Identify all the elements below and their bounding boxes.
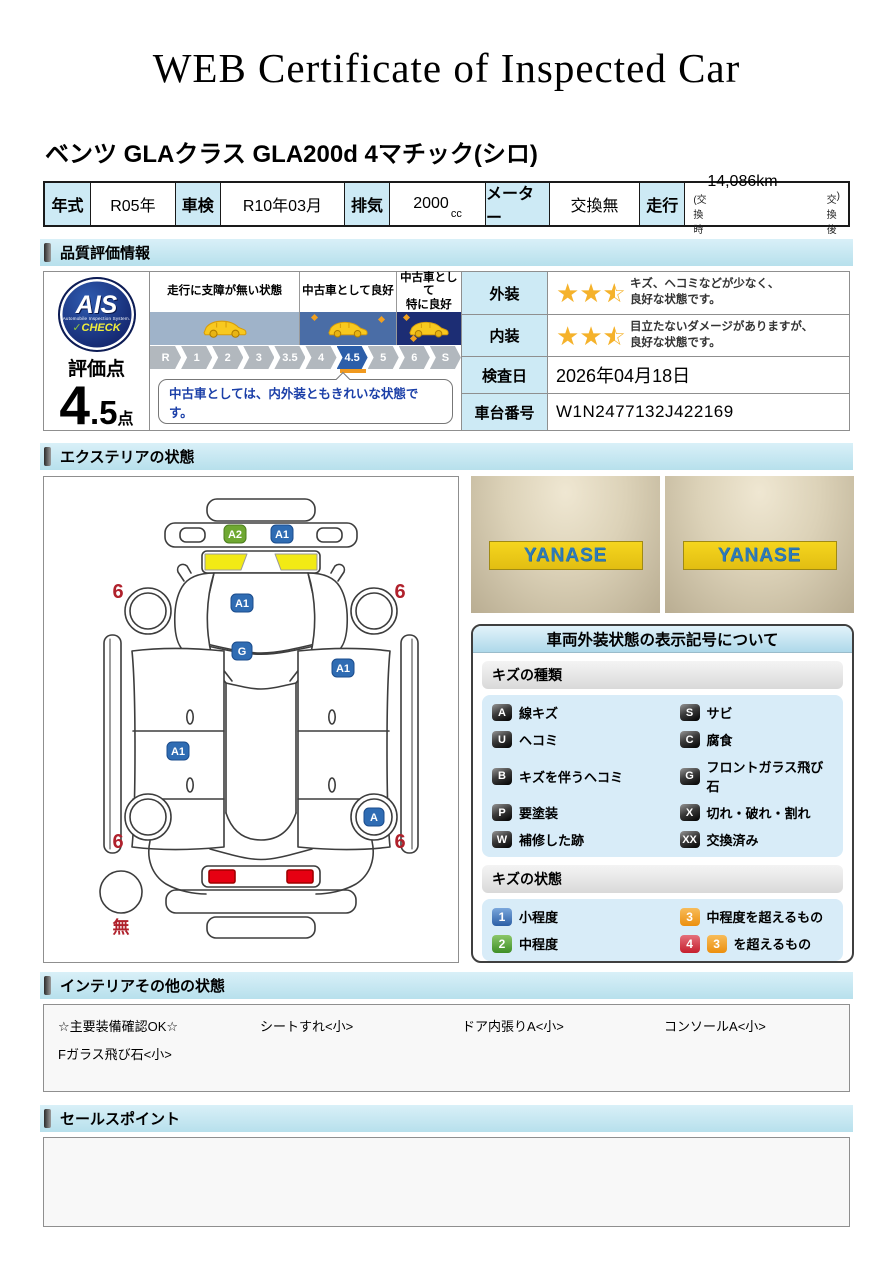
vehicle-photos: YANASE YANASE — [471, 476, 854, 613]
roof — [226, 683, 296, 813]
legend-item: Sサビ — [680, 703, 833, 722]
section-title: 品質評価情報 — [60, 242, 150, 263]
spec-meter-label: メーター — [485, 183, 549, 225]
legend-item: 43を超えるもの — [680, 934, 833, 953]
score-value: 4 .5 点 — [59, 381, 133, 431]
interior-notes: ☆主要装備確認OK☆ シートすれ<小> ドア内張りA<小> コンソールA<小> … — [43, 1004, 850, 1092]
damage-marker-A1-right-door: A1 — [332, 659, 354, 677]
grade-seg-2: 2 — [212, 346, 243, 369]
ais-check-label: ✓CHECK — [72, 321, 120, 334]
sparkle-icon — [311, 314, 318, 321]
zone-band — [300, 312, 395, 345]
table-row: 外装 ★★★☆ キズ、ヘコミなどが少なく、 良好な状態です。 — [462, 272, 849, 314]
zone-excellent: 中古車として 特に良好 — [396, 272, 461, 345]
vin-label: 車台番号 — [462, 394, 548, 430]
tire-depth-rear-left: 6 — [112, 831, 123, 853]
zone-drivable: 走行に支障が無い状態 — [150, 272, 299, 345]
legend-item: 3中程度を超えるもの — [680, 907, 833, 926]
damage-code-badge: X — [680, 804, 700, 821]
damage-symbol-legend: 車両外装状態の表示記号について キズの種類 A線キズ Sサビ Uヘコミ C腐食 … — [471, 624, 854, 963]
legend-item: Bキズを伴うヘコミ — [492, 757, 680, 795]
headlight-right — [275, 554, 317, 570]
star-icon: ★ — [556, 323, 579, 349]
grade-seg-5: 5 — [368, 346, 399, 369]
legend-item: 2中程度 — [492, 934, 680, 953]
svg-text:A2: A2 — [228, 529, 242, 541]
damage-marker-A1-hood: A1 — [231, 594, 253, 612]
star-rating: ★★★☆ — [556, 323, 626, 349]
grade-seg-4_5-active: 4.5 — [337, 346, 368, 369]
headlight-left — [205, 554, 247, 570]
grade-seg-3: 3 — [243, 346, 274, 369]
legend-item: X切れ・破れ・割れ — [680, 803, 833, 822]
inspection-date-value: 2026年04月18日 — [548, 357, 849, 393]
sparkle-icon — [378, 316, 385, 323]
car-damage-diagram: A2 A1 A1 G A — [43, 476, 459, 963]
interior-note: シートすれ<小> — [260, 1016, 462, 1035]
legend-item: C腐食 — [680, 730, 833, 749]
mileage-note: (交換時 交換後 ) — [693, 191, 840, 236]
grade-seg-1: 1 — [181, 346, 212, 369]
mileage-note-close: ) — [837, 191, 840, 236]
damage-marker-A1-left-door: A1 — [167, 742, 189, 760]
quality-detail-table: 外装 ★★★☆ キズ、ヘコミなどが少なく、 良好な状態です。 内装 ★★★☆ 目… — [462, 272, 849, 430]
spec-inspection-label: 車検 — [175, 183, 220, 225]
severity-badge: 4 — [680, 935, 700, 953]
table-row: 検査日 2026年04月18日 — [462, 356, 849, 393]
section-title: インテリアその他の状態 — [60, 975, 225, 996]
section-accent-bar — [44, 243, 51, 262]
interior-note: ☆主要装備確認OK☆ — [58, 1016, 260, 1035]
ais-score-block: AIS Automobile Inspection System. ✓CHECK… — [44, 272, 150, 430]
damage-code-badge: W — [492, 831, 512, 848]
damage-code-badge: P — [492, 804, 512, 821]
severity-badge: 3 — [707, 935, 727, 953]
interior-note: Fガラス飛び石<小> — [58, 1044, 260, 1063]
damage-code-badge: U — [492, 731, 512, 748]
legend-kinds-header: キズの種類 — [482, 661, 843, 689]
section-header-exterior: エクステリアの状態 — [40, 443, 853, 470]
taillight-right — [287, 870, 313, 883]
section-accent-bar — [44, 447, 51, 466]
spec-table: 年式 R05年 車検 R10年03月 排気 2000 cc メーター 交換無 走… — [43, 181, 850, 227]
mileage-note-after: 交換後 — [827, 191, 837, 236]
grade-seg-6: 6 — [399, 346, 430, 369]
interior-label: 内装 — [462, 315, 548, 356]
grade-seg-S: S — [430, 346, 461, 369]
displacement-unit: cc — [451, 208, 462, 220]
damage-code-badge: C — [680, 731, 700, 748]
svg-text:G: G — [238, 646, 247, 658]
damage-code-badge: G — [680, 768, 700, 785]
damage-code-badge: B — [492, 768, 512, 785]
exterior-label: 外装 — [462, 272, 548, 314]
tire-depth-rear-right: 6 — [394, 831, 405, 853]
legend-item: Uヘコミ — [492, 730, 680, 749]
exterior-content: A2 A1 A1 G A — [43, 476, 850, 963]
star-icon: ★ — [579, 280, 602, 306]
damage-code-badge: A — [492, 704, 512, 721]
spec-year-value: R05年 — [90, 183, 175, 225]
grade-comment: 中古車としては、内外装ともきれいな状態です。 — [158, 379, 453, 424]
zone-band — [150, 312, 299, 345]
section-title: エクステリアの状態 — [60, 446, 195, 467]
star-icon: ★ — [556, 280, 579, 306]
exterior-comment: キズ、ヘコミなどが少なく、 良好な状態です。 — [630, 277, 780, 308]
dealer-sign: YANASE — [489, 541, 643, 570]
half-star-icon: ★☆ — [603, 323, 626, 349]
damage-marker-A2: A2 — [224, 525, 246, 543]
legend-item: W補修した跡 — [492, 830, 680, 849]
car-name: ベンツ GLAクラス GLA200d 4マチック(シロ) — [45, 134, 893, 169]
rating-zones: 走行に支障が無い状態 中古車として良好 中古車として — [150, 272, 461, 345]
rear-window — [226, 813, 296, 840]
ais-logo: AIS Automobile Inspection System. ✓CHECK — [58, 277, 136, 352]
legend-item: A線キズ — [492, 703, 680, 722]
severity-badge: 1 — [492, 908, 512, 926]
page-title: WEB Certificate of Inspected Car — [0, 0, 893, 92]
svg-text:A: A — [370, 812, 378, 824]
legend-title: 車両外装状態の表示記号について — [473, 626, 852, 653]
dealer-sign: YANASE — [683, 541, 837, 570]
zone-band — [397, 312, 461, 345]
spec-mileage-cell: 14,086km (交換時 交換後 ) — [684, 183, 848, 225]
legend-item: XX交換済み — [680, 830, 833, 849]
rating-scale-block: 走行に支障が無い状態 中古車として良好 中古車として — [150, 272, 462, 430]
interior-note: ドア内張りA<小> — [462, 1016, 664, 1035]
section-header-sales: セールスポイント — [40, 1105, 853, 1132]
damage-marker-A-rear-wheel: A — [364, 808, 384, 826]
interior-note: コンソールA<小> — [664, 1016, 835, 1035]
taillight-left — [209, 870, 235, 883]
ais-logo-text: AIS — [76, 295, 118, 315]
spec-year-label: 年式 — [45, 183, 90, 225]
section-header-quality: 品質評価情報 — [40, 239, 853, 266]
legend-states-header: キズの状態 — [482, 865, 843, 893]
section-accent-bar — [44, 1109, 51, 1128]
vehicle-photo: YANASE — [471, 476, 660, 613]
legend-kinds-list: A線キズ Sサビ Uヘコミ C腐食 Bキズを伴うヘコミ Gフロントガラス飛び石 … — [482, 695, 843, 857]
damage-marker-A1-bumper: A1 — [271, 525, 293, 543]
section-header-interior: インテリアその他の状態 — [40, 972, 853, 999]
spec-mileage-label: 走行 — [639, 183, 684, 225]
damage-code-badge: XX — [680, 831, 700, 848]
vin-value: W1N2477132J422169 — [548, 394, 849, 430]
svg-text:A1: A1 — [171, 746, 185, 758]
star-icon: ★ — [579, 323, 602, 349]
spec-inspection-value: R10年03月 — [220, 183, 344, 225]
score-unit: 点 — [118, 413, 134, 427]
mileage-value: 14,086km — [693, 173, 840, 191]
svg-text:A1: A1 — [336, 663, 350, 675]
damage-marker-G-windshield: G — [232, 642, 252, 660]
legend-item: Gフロントガラス飛び石 — [680, 757, 833, 795]
table-row: 内装 ★★★☆ 目立たないダメージがありますが、 良好な状態です。 — [462, 314, 849, 356]
spare-tire-none-label: 無 — [113, 917, 130, 937]
mileage-note-open: (交換時 — [693, 191, 706, 236]
svg-text:A1: A1 — [275, 529, 289, 541]
inspection-date-label: 検査日 — [462, 357, 548, 393]
section-accent-bar — [44, 976, 51, 995]
grade-seg-R: R — [150, 346, 181, 369]
check-icon: ✓ — [72, 322, 81, 334]
table-row: 車台番号 W1N2477132J422169 — [462, 393, 849, 430]
car-icon — [202, 319, 248, 338]
spec-meter-value: 交換無 — [549, 183, 639, 225]
vehicle-photo: YANASE — [665, 476, 854, 613]
displacement-number: 2000 — [413, 195, 449, 213]
hood — [194, 573, 328, 653]
half-star-icon: ★☆ — [603, 280, 626, 306]
exterior-right-column: YANASE YANASE 車両外装状態の表示記号について キズの種類 A線キズ… — [471, 476, 854, 963]
score-int: 4 — [59, 381, 90, 431]
certificate-page: WEB Certificate of Inspected Car ベンツ GLA… — [0, 0, 893, 1263]
grade-scale: R 1 2 3 3.5 4 4.5 5 6 S — [150, 346, 461, 369]
spare-tire — [100, 871, 142, 913]
legend-item: 1小程度 — [492, 907, 680, 926]
grade-seg-4: 4 — [305, 346, 336, 369]
svg-text:A1: A1 — [235, 598, 249, 610]
car-icon — [327, 320, 369, 338]
quality-panel: AIS Automobile Inspection System. ✓CHECK… — [43, 271, 850, 431]
section-title: セールスポイント — [60, 1108, 180, 1129]
rear-lower-panel — [207, 917, 315, 938]
score-frac: .5 — [90, 398, 118, 428]
spec-displacement-value: 2000 cc — [389, 183, 485, 225]
legend-states-list: 1小程度 3中程度を超えるもの 2中程度 43を超えるもの — [482, 899, 843, 961]
interior-comment: 目立たないダメージがありますが、 良好な状態です。 — [630, 320, 813, 351]
sales-point-box — [43, 1137, 850, 1227]
legend-item: P要塗装 — [492, 803, 680, 822]
star-rating: ★★★☆ — [556, 280, 626, 306]
grade-seg-3_5: 3.5 — [274, 346, 305, 369]
severity-badge: 2 — [492, 935, 512, 953]
zone-good: 中古車として良好 — [299, 272, 395, 345]
damage-code-badge: S — [680, 704, 700, 721]
spec-displacement-label: 排気 — [344, 183, 389, 225]
front-window-strip — [207, 499, 315, 521]
severity-badge: 3 — [680, 908, 700, 926]
tire-depth-front-left: 6 — [112, 581, 123, 603]
tire-depth-front-right: 6 — [394, 581, 405, 603]
